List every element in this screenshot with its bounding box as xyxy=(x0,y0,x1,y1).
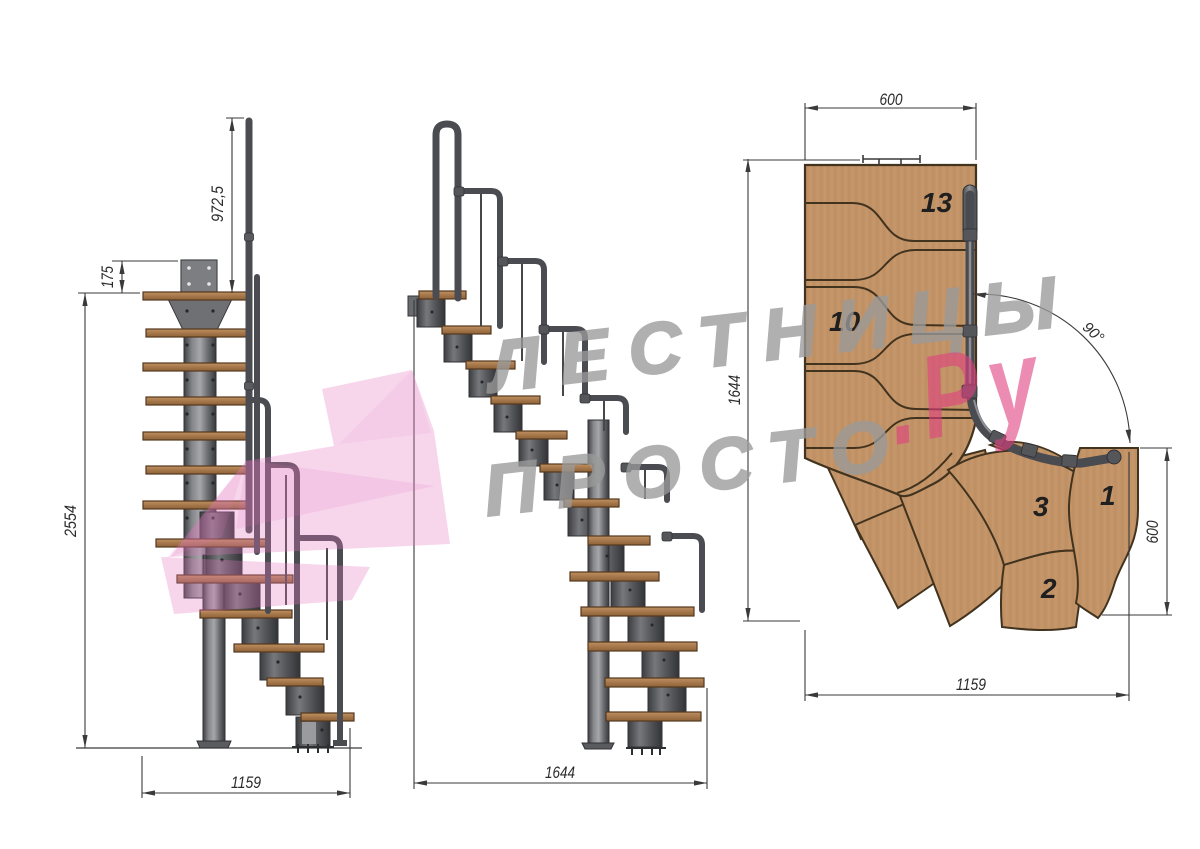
svg-text:2: 2 xyxy=(1040,573,1057,604)
svg-text:13: 13 xyxy=(921,187,953,218)
svg-text:3: 3 xyxy=(1033,491,1049,522)
svg-text:972,5: 972,5 xyxy=(208,186,227,222)
svg-text:600: 600 xyxy=(880,90,903,109)
svg-text:1644: 1644 xyxy=(545,763,575,782)
svg-text:1159: 1159 xyxy=(231,773,261,792)
svg-text:.Ру: .Ру xyxy=(877,314,1057,471)
svg-text:1159: 1159 xyxy=(956,675,986,694)
svg-text:175: 175 xyxy=(98,266,117,288)
svg-text:1: 1 xyxy=(1100,480,1116,511)
svg-text:2554: 2554 xyxy=(61,505,80,538)
svg-text:600: 600 xyxy=(1143,520,1162,543)
